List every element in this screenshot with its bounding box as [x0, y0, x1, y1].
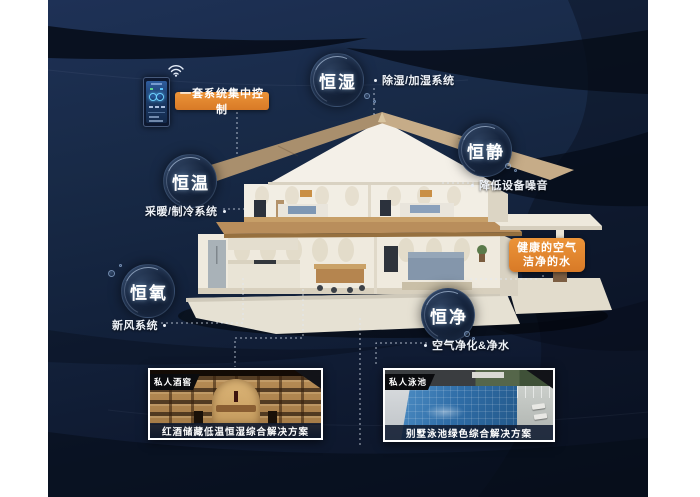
label-air-water-purification: 空气净化&净水 — [424, 337, 509, 353]
stat-readout — [149, 106, 153, 108]
bullet-dot — [471, 184, 474, 187]
controller-screen — [146, 81, 167, 123]
micro-bubble — [108, 270, 115, 277]
clean-water-line: 洁净的水 — [523, 255, 571, 269]
micro-bubble — [505, 163, 511, 169]
bubble-constant-quiet: 恒静 — [458, 123, 512, 177]
label-heating-cooling-system: 采暖/制冷系统 — [145, 203, 226, 219]
wall-controller-device — [143, 77, 170, 127]
bubble-constant-temperature: 恒温 — [163, 154, 217, 208]
photo-tag-wine: 私人酒窖 — [150, 374, 200, 390]
bullet-dot — [424, 344, 427, 347]
menu-row — [149, 116, 159, 118]
central-control-label: 一套系统集中控制 — [175, 85, 269, 117]
photo-caption-pool: 别墅泳池绿色综合解决方案 — [385, 425, 553, 440]
pool-photo: 私人泳池 别墅泳池绿色综合解决方案 — [383, 368, 555, 442]
label-text: 采暖/制冷系统 — [145, 203, 218, 219]
label-text: 空气净化&净水 — [432, 337, 509, 353]
dial-icon — [156, 93, 164, 101]
label-text: 新风系统 — [112, 317, 158, 333]
label-fresh-air-system: 新风系统 — [112, 317, 166, 333]
stat-readout — [155, 106, 159, 108]
micro-bubble — [373, 100, 376, 103]
bubble-constant-humidity: 恒湿 — [310, 53, 364, 107]
controller-title-bar — [151, 83, 162, 85]
photo-tag-pool: 私人泳池 — [385, 374, 435, 390]
scene-background: 一套系统集中控制 健康的空气 洁净的水 恒湿 恒静 恒温 恒氧 恒净 — [48, 0, 648, 497]
healthy-air-water-callout: 健康的空气 洁净的水 — [509, 238, 585, 272]
wine-tasting-table — [216, 405, 256, 412]
micro-bubble — [119, 264, 122, 267]
bullet-dot — [223, 210, 226, 213]
micro-bubble — [514, 169, 517, 172]
wine-cellar-photo: 私人酒窖 红酒储藏低温恒湿综合解决方案 — [148, 368, 323, 440]
infographic-page: 一套系统集中控制 健康的空气 洁净的水 恒湿 恒静 恒温 恒氧 恒净 — [0, 0, 700, 497]
stat-readout — [161, 106, 165, 108]
pool-canopy — [472, 372, 504, 378]
label-text: 除湿/加湿系统 — [382, 72, 455, 88]
pool-water-glint — [425, 404, 465, 420]
status-indicator-green — [150, 88, 153, 90]
screen-divider — [148, 112, 165, 113]
bullet-dot — [374, 79, 377, 82]
wifi-icon — [167, 62, 185, 77]
wine-bottle — [234, 391, 238, 402]
central-control-callout: 一套系统集中控制 — [175, 92, 269, 110]
pool-glass-fence — [517, 386, 553, 398]
photo-caption-wine: 红酒储藏低温恒湿综合解决方案 — [150, 423, 321, 438]
bullet-dot — [163, 324, 166, 327]
healthy-air-line: 健康的空气 — [517, 241, 577, 255]
status-indicator-blue — [160, 88, 163, 90]
label-dehumidify-system: 除湿/加湿系统 — [374, 72, 455, 88]
bubble-constant-oxygen: 恒氧 — [121, 264, 175, 318]
micro-bubble — [364, 93, 370, 99]
label-text: 降低设备噪音 — [479, 177, 548, 193]
menu-row — [149, 120, 163, 122]
label-noise-reduction: 降低设备噪音 — [471, 177, 548, 193]
wine-arch — [212, 379, 260, 425]
